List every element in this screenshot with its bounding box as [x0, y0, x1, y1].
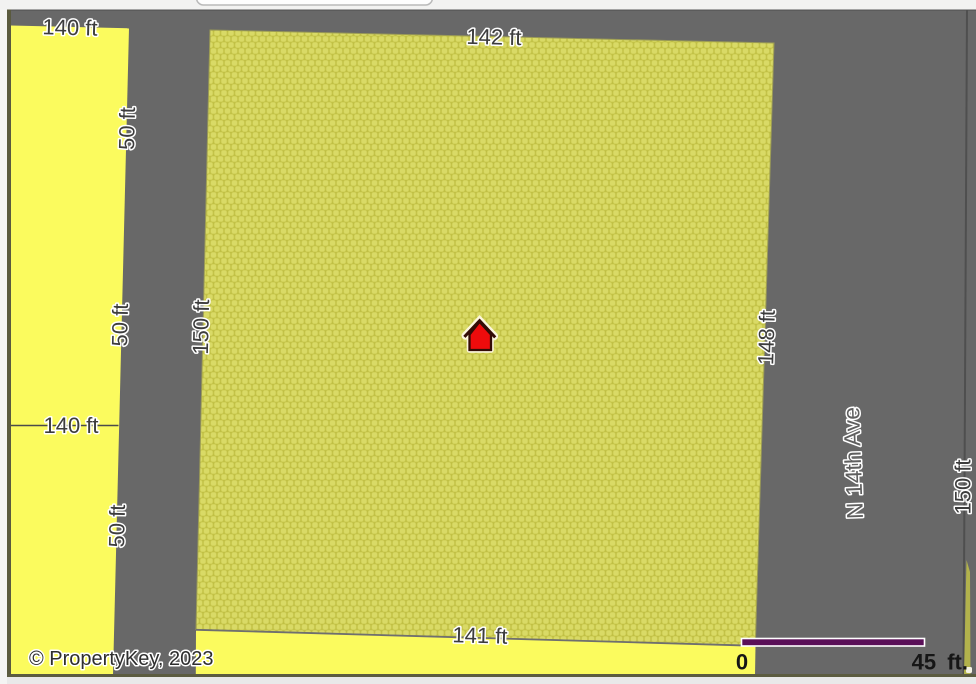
svg-text:N 14th Ave: N 14th Ave — [838, 407, 868, 520]
svg-text:45 ft.: 45 ft. — [912, 650, 968, 675]
svg-text:150 ft: 150 ft — [188, 299, 214, 355]
svg-text:0: 0 — [736, 650, 748, 675]
svg-text:140 ft: 140 ft — [43, 413, 98, 438]
svg-text:50 ft: 50 ft — [107, 303, 133, 346]
svg-text:50 ft: 50 ft — [104, 504, 130, 547]
svg-text:141 ft: 141 ft — [452, 622, 508, 649]
svg-text:148 ft: 148 ft — [753, 310, 780, 366]
svg-text:142 ft: 142 ft — [466, 24, 522, 50]
svg-text:150 ft: 150 ft — [951, 459, 976, 514]
svg-text:© PropertyKey, 2023: © PropertyKey, 2023 — [29, 648, 213, 670]
svg-text:50 ft: 50 ft — [114, 107, 140, 150]
svg-text:140 ft: 140 ft — [42, 14, 98, 40]
